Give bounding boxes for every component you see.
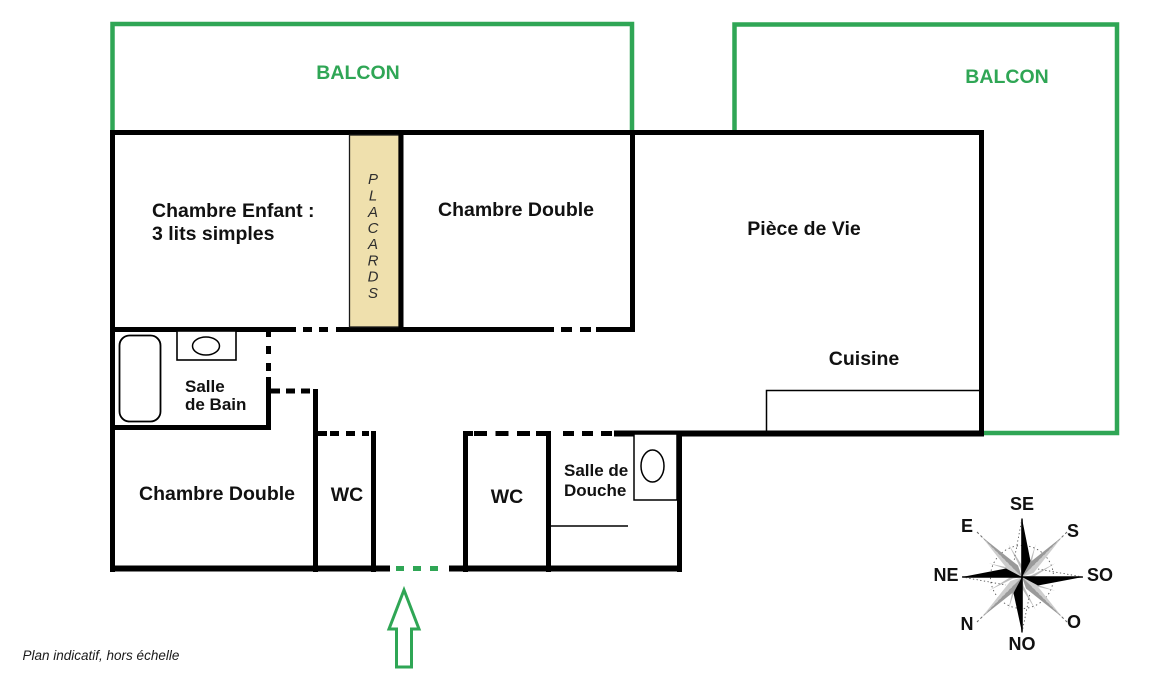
svg-text:NO: NO (1009, 634, 1036, 654)
svg-text:O: O (1067, 612, 1081, 632)
svg-text:C: C (368, 220, 379, 237)
svg-text:Salle: Salle (185, 377, 225, 396)
svg-text:Chambre Enfant :: Chambre Enfant : (152, 200, 315, 222)
svg-text:R: R (368, 253, 379, 270)
svg-text:SE: SE (1010, 494, 1034, 514)
svg-text:de Bain: de Bain (185, 395, 246, 414)
svg-text:Cuisine: Cuisine (829, 348, 900, 370)
svg-text:P: P (368, 171, 378, 188)
svg-text:3 lits simples: 3 lits simples (152, 223, 275, 245)
svg-text:WC: WC (491, 486, 524, 508)
svg-text:Salle de: Salle de (564, 461, 628, 480)
svg-text:A: A (367, 236, 378, 253)
svg-text:Plan indicatif, hors échelle: Plan indicatif, hors échelle (23, 648, 180, 663)
svg-text:S: S (1067, 521, 1079, 541)
svg-text:Chambre Double: Chambre Double (438, 199, 594, 221)
svg-text:BALCON: BALCON (316, 62, 399, 84)
svg-text:WC: WC (331, 484, 364, 506)
svg-text:N: N (961, 614, 974, 634)
svg-text:Chambre Double: Chambre Double (139, 483, 295, 505)
svg-text:SO: SO (1087, 565, 1113, 585)
svg-text:Pièce de Vie: Pièce de Vie (747, 218, 861, 240)
svg-text:BALCON: BALCON (965, 66, 1048, 88)
svg-text:D: D (368, 269, 379, 286)
svg-text:E: E (961, 516, 973, 536)
svg-text:NE: NE (933, 565, 958, 585)
svg-text:S: S (368, 285, 378, 302)
svg-text:L: L (369, 188, 377, 205)
svg-text:Douche: Douche (564, 481, 626, 500)
svg-text:A: A (367, 204, 378, 221)
